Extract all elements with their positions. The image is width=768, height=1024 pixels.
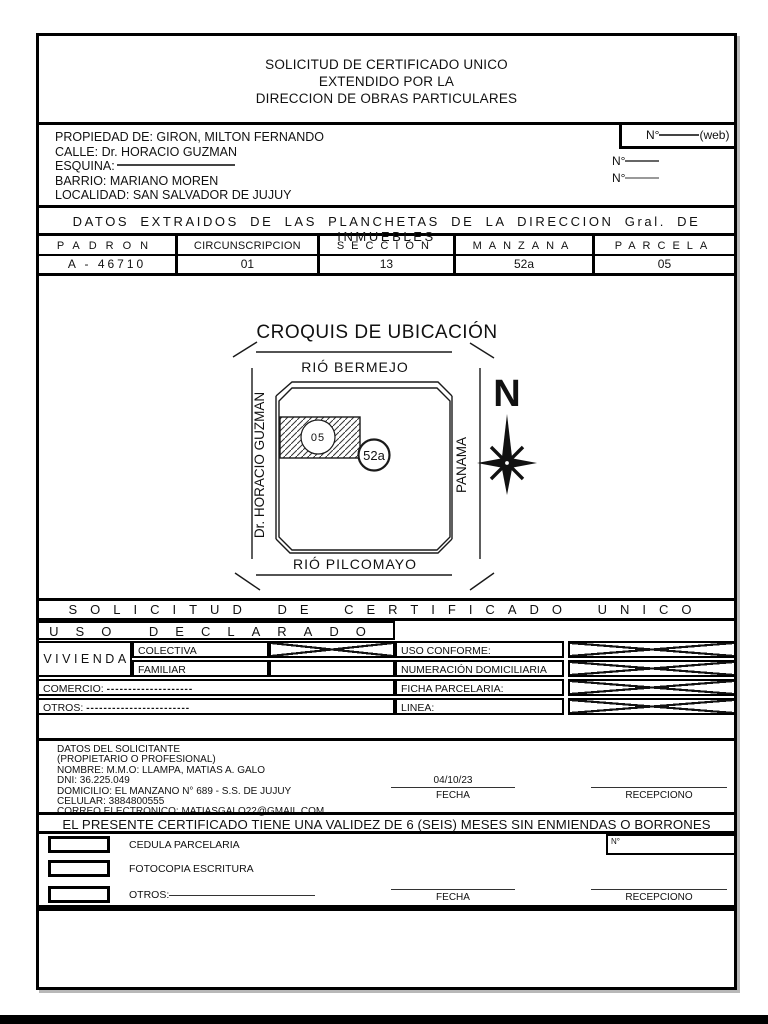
col-header-circunscripcion: CIRCUNSCRIPCION [178, 236, 320, 256]
numero-row-3: N° [612, 171, 659, 185]
propiedad-row: PROPIEDAD DE: GIRON, MILTON FERNANDO [55, 130, 324, 145]
form-header: SOLICITUD DE CERTIFICADO UNICO EXTENDIDO… [39, 36, 734, 122]
solicitud-band: SOLICITUD DE CERTIFICADO UNICO [39, 601, 734, 621]
linea-cell: LINEA: [395, 698, 564, 715]
documents-section: CEDULA PARCELARIA N° FOTOCOPIA ESCRITURA… [39, 834, 734, 908]
recepciono-label: RECEPCIONO [591, 790, 727, 801]
familiar-checkbox [269, 660, 395, 677]
colectiva-cell: COLECTIVA [132, 641, 269, 658]
fotocopia-checkbox [48, 860, 110, 877]
fecha-value: 04/10/23 [391, 775, 515, 786]
ficha-parcelaria-checkbox [568, 679, 734, 696]
compass-rose-icon: N [477, 373, 537, 495]
calle-row: CALLE: Dr. HORACIO GUZMAN [55, 145, 324, 160]
numero-web-box: N°(web) [619, 122, 737, 149]
numero-row-2: N° [612, 154, 659, 168]
form-title-line2: EXTENDIDO POR LA [39, 73, 734, 90]
numero-web-suffix: (web) [699, 128, 729, 142]
circunscripcion-value: 01 [178, 256, 320, 273]
seccion-value: 13 [320, 256, 456, 273]
otros-cell: OTROS: ------------------------ [39, 698, 395, 715]
documents-recepciono-line [591, 889, 727, 890]
fecha-label: FECHA [391, 790, 515, 801]
otros-dotted-blank: ------------------------ [86, 703, 190, 714]
localidad-row: LOCALIDAD: SAN SALVADOR DE JUJUY [55, 188, 324, 203]
numeracion-cell: NUMERACIÓN DOMICILIARIA [395, 660, 564, 677]
property-lines: PROPIEDAD DE: GIRON, MILTON FERNANDO CAL… [55, 130, 324, 203]
form-title-line1: SOLICITUD DE CERTIFICADO UNICO [39, 56, 734, 73]
uso-declarado-band: USO DECLARADO [39, 621, 395, 640]
form-title-line3: DIRECCION DE OBRAS PARTICULARES [39, 90, 734, 107]
fecha-line [391, 787, 515, 788]
parcel-number-label: 05 [311, 432, 325, 444]
cedula-label: CEDULA PARCELARIA [129, 839, 240, 851]
otros-label: OTROS: [129, 889, 315, 901]
validity-band: EL PRESENTE CERTIFICADO TIENE UNA VALIDE… [39, 812, 734, 834]
street-bottom-label: RIÓ PILCOMAYO [293, 556, 417, 572]
col-header-padron: PADRON [39, 236, 178, 256]
chamfer-tick-nw [233, 342, 257, 357]
col-header-manzana: MANZANA [456, 236, 595, 256]
vivienda-cell: VIVIENDA [39, 641, 132, 677]
street-left-label: Dr. HORACIO GUZMAN [252, 392, 267, 538]
street-top-label: RIÓ BERMEJO [301, 359, 408, 375]
linea-checkbox [568, 698, 734, 715]
esquina-blank-line [117, 164, 235, 166]
barrio-row: BARRIO: MARIANO MOREN [55, 174, 324, 189]
cedula-checkbox [48, 836, 110, 853]
uso-table: VIVIENDA COLECTIVA FAMILIAR COMERCIO: --… [39, 641, 734, 719]
familiar-cell: FAMILIAR [132, 660, 269, 677]
padron-value: A - 46710 [39, 256, 178, 273]
empty-bottom-box [39, 908, 734, 987]
numeracion-checkbox [568, 660, 734, 677]
page-bottom-bar [0, 1015, 768, 1024]
manzana-value: 52a [456, 256, 595, 273]
cadastral-table: PADRON CIRCUNSCRIPCION SECCIÓN MANZANA P… [39, 236, 734, 276]
numero2-blank [625, 160, 659, 162]
documents-fecha-line [391, 889, 515, 890]
solicitante-lines: DATOS DEL SOLICITANTE (PROPIETARIO O PRO… [57, 745, 324, 818]
documents-recepciono-label: RECEPCIONO [591, 892, 727, 903]
croquis-map: 05 52a RIÓ BERMEJO RIÓ PILCOMAYO Dr. HOR… [39, 276, 734, 596]
street-right-label: PANAMA [454, 437, 469, 493]
numero-web-blank [659, 134, 699, 136]
esquina-row: ESQUINA: [55, 159, 324, 174]
otros-checkbox [48, 886, 110, 903]
compass-north-label: N [493, 373, 520, 415]
fotocopia-label: FOTOCOPIA ESCRITURA [129, 863, 254, 875]
otros-blank-line [169, 895, 315, 896]
numero3-blank [625, 177, 659, 179]
ficha-parcelaria-cell: FICHA PARCELARIA: [395, 679, 564, 696]
block-outline [279, 388, 450, 550]
colectiva-checkbox [269, 641, 395, 658]
comercio-dotted-blank: -------------------- [107, 684, 194, 695]
numero-web-label: N° [646, 128, 659, 142]
documents-numero-box: N° [606, 834, 734, 855]
uso-conforme-cell: USO CONFORME: [395, 641, 564, 658]
form-sheet: SOLICITUD DE CERTIFICADO UNICO EXTENDIDO… [36, 33, 737, 990]
solicitante-section: DATOS DEL SOLICITANTE (PROPIETARIO O PRO… [39, 738, 734, 812]
chamfer-tick-ne [470, 343, 494, 358]
uso-conforme-checkbox [568, 641, 734, 658]
street-top-inner-line [276, 382, 452, 396]
property-section: PROPIEDAD DE: GIRON, MILTON FERNANDO CAL… [39, 122, 734, 205]
street-bottom-inner-line [276, 539, 452, 553]
datos-extraidos-band: DATOS EXTRAIDOS DE LAS PLANCHETAS DE LA … [39, 205, 734, 236]
col-header-parcela: PARCELA [595, 236, 734, 256]
comercio-cell: COMERCIO: -------------------- [39, 679, 395, 696]
col-header-seccion: SECCIÓN [320, 236, 456, 256]
parcela-value: 05 [595, 256, 734, 273]
documents-fecha-label: FECHA [391, 892, 515, 903]
chamfer-tick-se [470, 573, 494, 590]
block-number-label: 52a [363, 448, 385, 463]
croquis-title: CROQUIS DE UBICACIÓN [256, 321, 497, 343]
croquis-section: 05 52a RIÓ BERMEJO RIÓ PILCOMAYO Dr. HOR… [39, 276, 734, 601]
documents-numero-label: N° [611, 837, 620, 846]
recepciono-line [591, 787, 727, 788]
